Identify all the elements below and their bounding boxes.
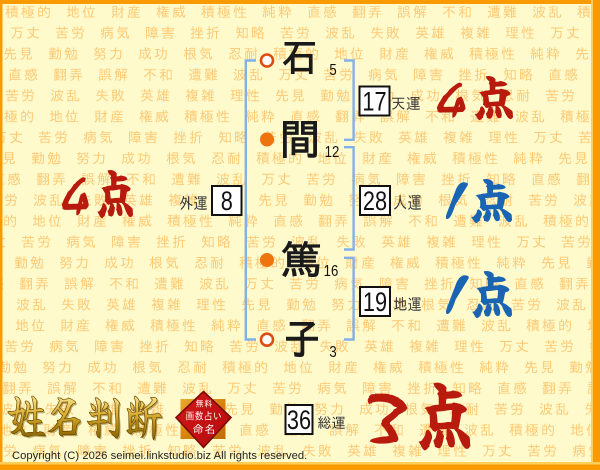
svg-text:19: 19: [363, 288, 387, 318]
svg-text:17: 17: [362, 88, 386, 118]
svg-text:Copyright (C) 2026 seimei.link: Copyright (C) 2026 seimei.linkstudio.biz…: [12, 450, 307, 462]
svg-text:36: 36: [287, 406, 311, 436]
svg-text:16: 16: [324, 263, 339, 280]
svg-text:12: 12: [325, 144, 340, 161]
svg-text:28: 28: [363, 187, 387, 217]
svg-text:8: 8: [221, 187, 233, 217]
svg-text:5: 5: [329, 62, 336, 79]
svg-text:3: 3: [329, 344, 336, 361]
